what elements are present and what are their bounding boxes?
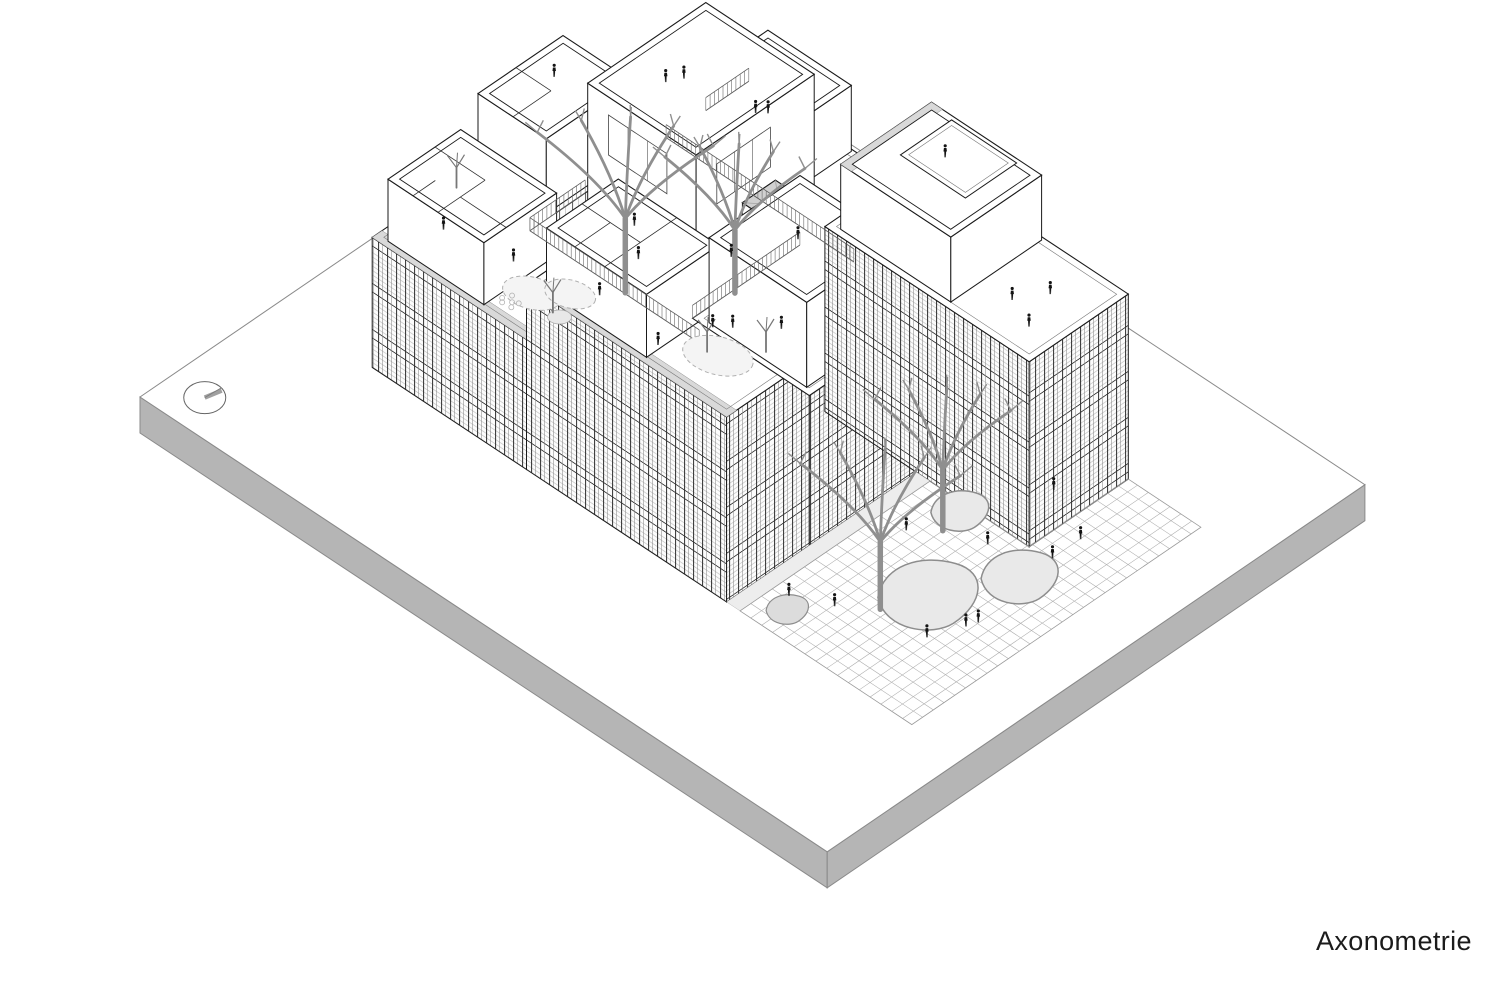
drawing-title: Axonometrie [1316, 926, 1472, 957]
north-compass-icon [184, 382, 226, 414]
axonometric-drawing [0, 0, 1500, 1000]
page: Axonometrie [0, 0, 1500, 1000]
